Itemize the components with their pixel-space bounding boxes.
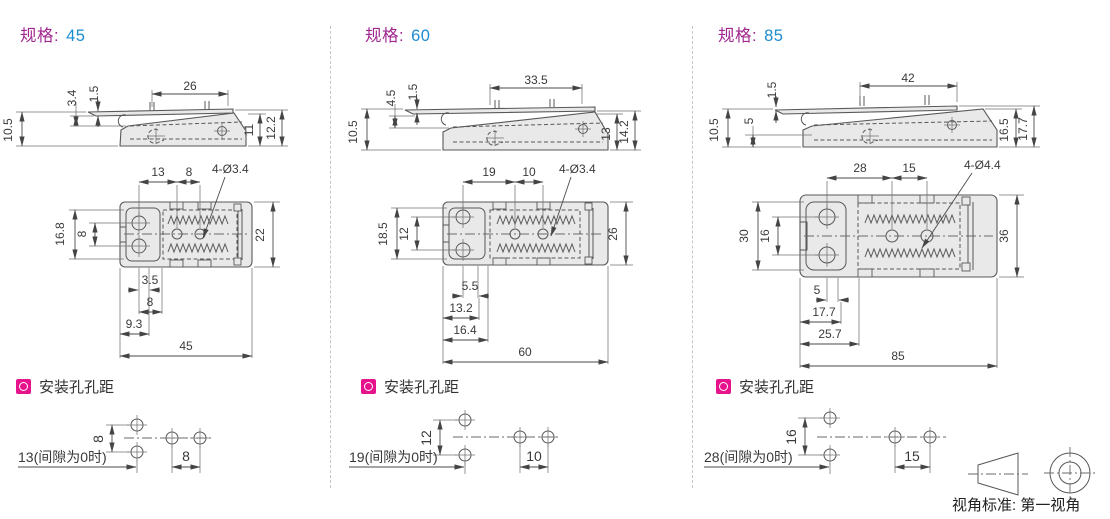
dim-plan-l2: 8 bbox=[75, 230, 89, 237]
section-title: 安装孔孔距 bbox=[39, 376, 114, 397]
dim-plan-t1: 19 bbox=[482, 165, 496, 179]
dim-plan-t1: 13 bbox=[151, 165, 165, 179]
section-header: 安装孔孔距 bbox=[16, 376, 114, 397]
mount-note: 13(间隙为0时) bbox=[18, 449, 107, 465]
dim-plan-b2: 8 bbox=[147, 295, 154, 309]
technical-drawing: 33.5 4.5 1.5 10.5 13 14.2 bbox=[345, 52, 675, 403]
spec-title: 规格:85 bbox=[718, 22, 783, 46]
mount-dim-v: 8 bbox=[90, 435, 106, 443]
dim-side-left: 10.5 bbox=[707, 118, 721, 142]
section-bullet-icon bbox=[361, 379, 376, 394]
dim-side-r2: 17.7 bbox=[1016, 117, 1030, 141]
hole-callout: 4-Ø3.4 bbox=[212, 162, 249, 176]
dim-side-left: 10.5 bbox=[1, 118, 15, 142]
section-bullet-icon bbox=[716, 379, 731, 394]
section-title: 安装孔孔距 bbox=[384, 376, 459, 397]
dim-side-r1: 11 bbox=[242, 123, 256, 136]
panel-separator bbox=[330, 26, 331, 488]
section-bullet-icon bbox=[16, 379, 31, 394]
dim-side-r2: 12.2 bbox=[264, 116, 278, 140]
dim-plan-b3: 25.7 bbox=[818, 327, 842, 341]
dim-plan-b1: 5.5 bbox=[462, 279, 479, 293]
plan-view bbox=[800, 195, 997, 277]
dim-side-left: 10.5 bbox=[346, 120, 360, 144]
dim-plan-b2: 13.2 bbox=[449, 301, 473, 315]
dim-plan-l1: 18.5 bbox=[376, 222, 390, 246]
dim-plan-b4: 85 bbox=[891, 349, 905, 363]
drawing-sheet: 规格:45 26 3.4 1.5 10.5 bbox=[0, 0, 1110, 519]
dim-plan-l2: 16 bbox=[758, 229, 772, 243]
spec-value: 60 bbox=[411, 27, 430, 45]
first-angle-projection-symbol bbox=[968, 447, 1096, 499]
side-view bbox=[405, 99, 608, 150]
panel-spec-45: 规格:45 26 3.4 1.5 10.5 bbox=[0, 0, 330, 519]
technical-drawing: 42 1.5 10.5 5 16.5 17.7 bbox=[700, 52, 1110, 403]
side-view bbox=[88, 101, 246, 146]
spec-title: 规格:45 bbox=[20, 22, 85, 46]
mount-dim-v: 12 bbox=[418, 430, 434, 446]
dim-plan-r1: 36 bbox=[997, 229, 1011, 243]
dim-side-r2: 14.2 bbox=[617, 120, 631, 144]
mount-dim-v: 16 bbox=[783, 429, 799, 445]
hole-callout: 4-Ø3.4 bbox=[559, 162, 596, 176]
hole-callout: 4-Ø4.4 bbox=[964, 158, 1001, 172]
panel-spec-85: 规格:85 42 1.5 10.5 5 bbox=[700, 0, 1110, 519]
dim-side-v2: 1.5 bbox=[406, 83, 420, 100]
mount-note: 19(间隙为0时) bbox=[349, 449, 438, 465]
section-header: 安装孔孔距 bbox=[716, 376, 814, 397]
dim-side-top: 33.5 bbox=[524, 73, 548, 87]
mount-dim-h: 10 bbox=[526, 448, 542, 464]
dim-plan-r1: 22 bbox=[253, 228, 267, 242]
dim-side-v2: 1.5 bbox=[765, 81, 779, 98]
spec-value: 45 bbox=[66, 27, 85, 45]
dim-plan-t2: 15 bbox=[902, 161, 916, 175]
dim-side-r1: 13 bbox=[599, 127, 613, 141]
dim-plan-t1: 28 bbox=[853, 161, 867, 175]
dim-plan-t2: 8 bbox=[186, 165, 193, 179]
dim-plan-b4: 45 bbox=[179, 339, 193, 353]
section-title: 安装孔孔距 bbox=[739, 376, 814, 397]
dim-plan-t2: 10 bbox=[522, 165, 536, 179]
side-view bbox=[775, 95, 997, 147]
dim-side-v1: 4.5 bbox=[384, 89, 398, 106]
dim-plan-b1: 5 bbox=[814, 283, 821, 297]
panel-separator bbox=[692, 26, 693, 488]
section-header: 安装孔孔距 bbox=[361, 376, 459, 397]
dim-plan-l2: 12 bbox=[397, 227, 411, 241]
dim-plan-b3: 16.4 bbox=[453, 323, 477, 337]
dim-side-v2: 1.5 bbox=[87, 85, 101, 102]
view-standard-label: 视角标准: bbox=[952, 497, 1016, 514]
spec-title: 规格:60 bbox=[365, 22, 430, 46]
dim-plan-b1: 3.5 bbox=[142, 273, 159, 287]
mount-hole-diagram: 12 19(间隙为0时) 10 bbox=[345, 403, 675, 519]
mount-dim-h: 15 bbox=[904, 448, 920, 464]
plan-view bbox=[443, 202, 608, 265]
dim-side-v1: 5 bbox=[742, 117, 756, 124]
plan-view bbox=[120, 202, 252, 267]
spec-label: 规格: bbox=[365, 27, 404, 45]
spec-value: 85 bbox=[764, 27, 783, 45]
dim-side-v1: 3.4 bbox=[65, 89, 79, 106]
dim-side-r1: 16.5 bbox=[997, 118, 1011, 142]
dim-plan-l1: 16.8 bbox=[53, 222, 67, 246]
mount-dim-h: 8 bbox=[182, 448, 190, 464]
panel-spec-60: 规格:60 33.5 4.5 1.5 10.5 bbox=[345, 0, 675, 519]
dim-plan-b3: 9.3 bbox=[126, 317, 143, 331]
dim-plan-b2: 17.7 bbox=[812, 305, 836, 319]
dim-plan-b4: 60 bbox=[518, 345, 532, 359]
view-standard-caption: 视角标准: 第一视角 bbox=[952, 494, 1080, 515]
mount-note: 28(间隙为0时) bbox=[704, 449, 793, 465]
dim-plan-r1: 26 bbox=[606, 227, 620, 241]
dim-plan-l1: 30 bbox=[737, 229, 751, 243]
spec-label: 规格: bbox=[718, 27, 757, 45]
mount-hole-diagram: 8 13(间隙为0时) 8 bbox=[0, 403, 330, 519]
view-standard-value: 第一视角 bbox=[1020, 497, 1080, 514]
spec-label: 规格: bbox=[20, 27, 59, 45]
dim-side-top: 26 bbox=[183, 79, 197, 93]
technical-drawing: 26 3.4 1.5 10.5 11 12.2 bbox=[0, 52, 330, 403]
dim-side-top: 42 bbox=[901, 71, 915, 85]
